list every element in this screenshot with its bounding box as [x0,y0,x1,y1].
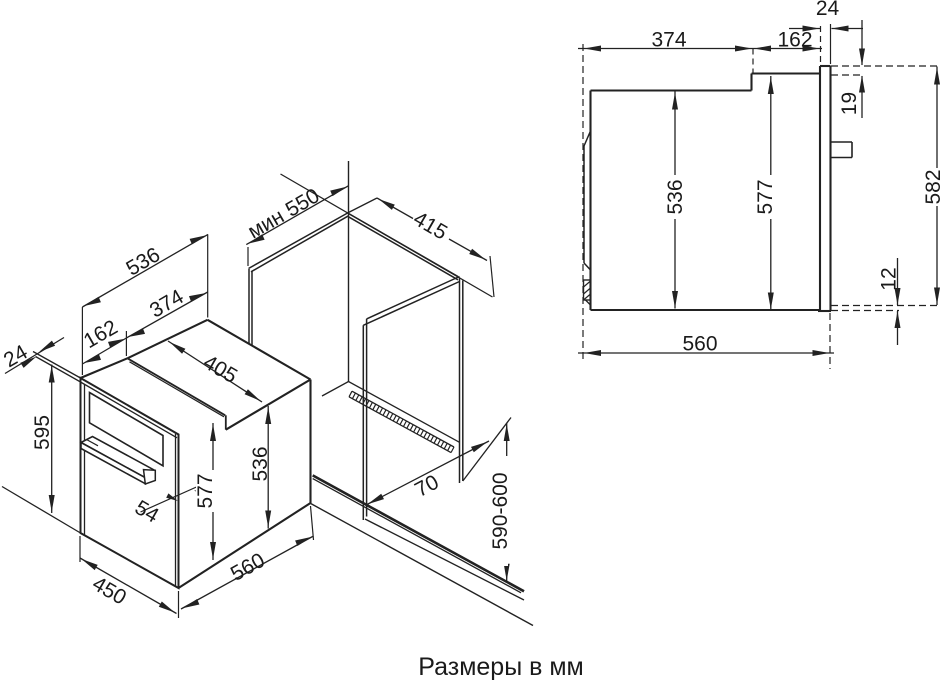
svg-text:582: 582 [922,169,944,204]
svg-text:374: 374 [651,29,686,52]
svg-text:Размеры в мм: Размеры в мм [418,653,583,681]
svg-text:162: 162 [777,29,812,52]
svg-text:595: 595 [31,415,54,450]
svg-text:590-600: 590-600 [489,472,512,549]
svg-text:19: 19 [838,92,861,115]
svg-text:577: 577 [194,473,217,508]
svg-text:560: 560 [682,333,717,356]
svg-text:536: 536 [249,446,272,481]
svg-text:536: 536 [664,179,687,214]
svg-text:577: 577 [754,179,777,214]
svg-text:24: 24 [816,0,840,20]
svg-text:12: 12 [878,267,901,290]
